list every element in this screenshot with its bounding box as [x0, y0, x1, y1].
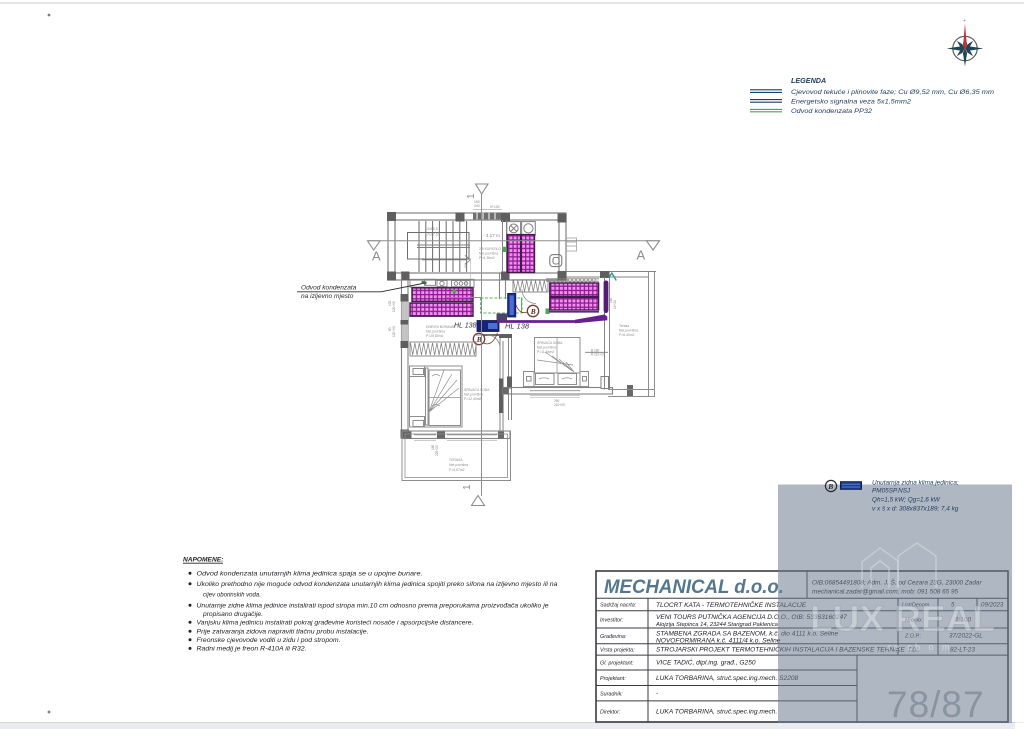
svg-text:MECHANICAL d.o.o.: MECHANICAL d.o.o.: [604, 576, 784, 598]
svg-text:240: 240: [474, 204, 480, 208]
svg-text:220+20: 220+20: [435, 445, 439, 456]
svg-text:Qh=1,5 kW; Qg=1,6 kW: Qh=1,5 kW; Qg=1,6 kW: [872, 497, 941, 504]
svg-text:SPAVAĆA SOBA: SPAVAĆA SOBA: [537, 340, 563, 345]
svg-text:Odvod kondenzata: Odvod kondenzata: [301, 285, 357, 292]
svg-text:P=6,40m2: P=6,40m2: [619, 333, 635, 337]
svg-text:A: A: [372, 249, 381, 264]
svg-text:NOVOFORMIRANA k.č. 4111/4 k.o: NOVOFORMIRANA k.č. 4111/4 k.o. Seline: [656, 638, 781, 645]
svg-text:Suradnik:: Suradnik:: [600, 692, 623, 698]
svg-text:90: 90: [464, 264, 468, 268]
svg-text:LEGENDA: LEGENDA: [791, 76, 826, 85]
svg-text:120+90: 120+90: [392, 301, 396, 312]
svg-text:Odvod kondenzata PP32: Odvod kondenzata PP32: [791, 108, 872, 115]
svg-text:78/87: 78/87: [887, 684, 985, 725]
svg-text:14+20: 14+20: [613, 300, 617, 309]
svg-text:Net.površina: Net.površina: [537, 346, 556, 350]
svg-text:PM05SP.NSJ: PM05SP.NSJ: [872, 488, 911, 495]
svg-text:Freonske cjevovode voditi u zi: Freonske cjevovode voditi u zidu i pod s…: [197, 637, 341, 644]
svg-text:re ch o m: re ch o m: [888, 642, 953, 652]
svg-text:A: A: [637, 248, 646, 263]
svg-text:Vrsta projekta:: Vrsta projekta:: [600, 648, 635, 654]
svg-text:Alojzija Stepinca 14, 23244 St: Alojzija Stepinca 14, 23244 Starigrad Pa…: [655, 622, 779, 628]
svg-text:Sadržaj nacrta:: Sadržaj nacrta:: [600, 603, 637, 609]
svg-text:120+90: 120+90: [392, 326, 396, 337]
svg-text:17x27,63: 17x27,63: [425, 233, 440, 237]
svg-text:13x18,5: 13x18,5: [425, 227, 438, 231]
svg-text:Odvod kondenzata unutarnjih kl: Odvod kondenzata unutarnjih klima jedini…: [197, 571, 423, 578]
svg-text:P=9,67m2: P=9,67m2: [449, 468, 465, 472]
svg-text:VICE TADIĆ, dipl.ing. građ., G: VICE TADIĆ, dipl.ing. građ., G250: [656, 658, 756, 667]
svg-text:Projektant:: Projektant:: [600, 676, 626, 682]
svg-text:propisano drugačije.: propisano drugačije.: [202, 611, 263, 618]
svg-text:DNEVNI BORAVAK: DNEVNI BORAVAK: [426, 325, 456, 329]
svg-text:LUKA TORBARINA, struč.spec.ing: LUKA TORBARINA, struč.spec.ing.mech. S22…: [656, 675, 799, 682]
svg-text:Investitor:: Investitor:: [600, 618, 624, 624]
svg-text:NAPOMENE:: NAPOMENE:: [183, 557, 223, 564]
svg-text:cijev oborinskih voda.: cijev oborinskih voda.: [203, 591, 261, 598]
svg-text:Net.površina: Net.površina: [426, 330, 445, 334]
svg-text:Prije zatvaranja zidova naprav: Prije zatvaranja zidova napraviti tlačnu…: [197, 629, 369, 636]
svg-text:Gl. projektant:: Gl. projektant:: [600, 661, 634, 667]
svg-text:TERASA: TERASA: [449, 458, 463, 462]
svg-text:HL 138: HL 138: [454, 323, 477, 330]
svg-text:2.5 KUPATILO: 2.5 KUPATILO: [479, 247, 501, 251]
svg-text:Radni medij je freon R-410A il: Radni medij je freon R-410A ili R32.: [197, 646, 307, 653]
svg-text:LUKA TORBARINA, struč.spec.ing: LUKA TORBARINA, struč.spec.ing.mech.: [656, 709, 777, 716]
svg-text:0+100: 0+100: [490, 205, 500, 209]
svg-text:Cjevovod tekuće i plinovite fa: Cjevovod tekuće i plinovite faze; Cu Ø9,…: [791, 89, 995, 96]
svg-text:P=12,40m2: P=12,40m2: [464, 397, 482, 401]
svg-text:SPAVAĆA SOBA: SPAVAĆA SOBA: [464, 387, 490, 392]
svg-text:P=25,80m2: P=25,80m2: [426, 334, 444, 338]
svg-text:B: B: [530, 307, 536, 316]
svg-text:B: B: [476, 335, 482, 344]
svg-text:na izljevno mjesto: na izljevno mjesto: [301, 293, 354, 300]
svg-text:Unutarnje zidne klima jedinice: Unutarnje zidne klima jedinice instalira…: [197, 603, 549, 610]
svg-text:Energetsko signalna veza 5x1,5: Energetsko signalna veza 5x1,5mm2: [791, 99, 911, 106]
svg-text:Terasa: Terasa: [619, 324, 629, 328]
svg-text:- 3.17 m: - 3.17 m: [483, 233, 500, 238]
svg-text:Net.površina: Net.površina: [464, 393, 483, 397]
svg-text:P=11,64m2: P=11,64m2: [537, 350, 554, 354]
svg-text:B: B: [827, 482, 833, 491]
svg-text:1: 1: [462, 484, 473, 490]
svg-text:Ukoliko prethodno nije moguće: Ukoliko prethodno nije moguće odvod kond…: [197, 581, 558, 588]
svg-text:210+20: 210+20: [554, 403, 565, 407]
svg-text:-: -: [656, 691, 659, 698]
svg-text:210+20: 210+20: [594, 353, 605, 357]
svg-text:Net.površina: Net.površina: [619, 329, 638, 333]
svg-text:LUX REAL: LUX REAL: [810, 598, 995, 639]
svg-text:v x š x d: 308x837x189; 7,4 kg: v x š x d: 308x837x189; 7,4 kg: [872, 506, 959, 513]
svg-text:Vanjsku klima jedinicu instali: Vanjsku klima jedinicu instalirati pokra…: [197, 620, 474, 627]
svg-text:Unutarnja zidna klima jedinica: Unutarnja zidna klima jedinica;: [872, 480, 959, 487]
svg-text:Građevina:: Građevina:: [600, 634, 627, 640]
svg-text:Direktor:: Direktor:: [600, 710, 621, 716]
svg-text:1: 1: [466, 193, 477, 199]
svg-text:Net.površina: Net.površina: [449, 463, 468, 467]
